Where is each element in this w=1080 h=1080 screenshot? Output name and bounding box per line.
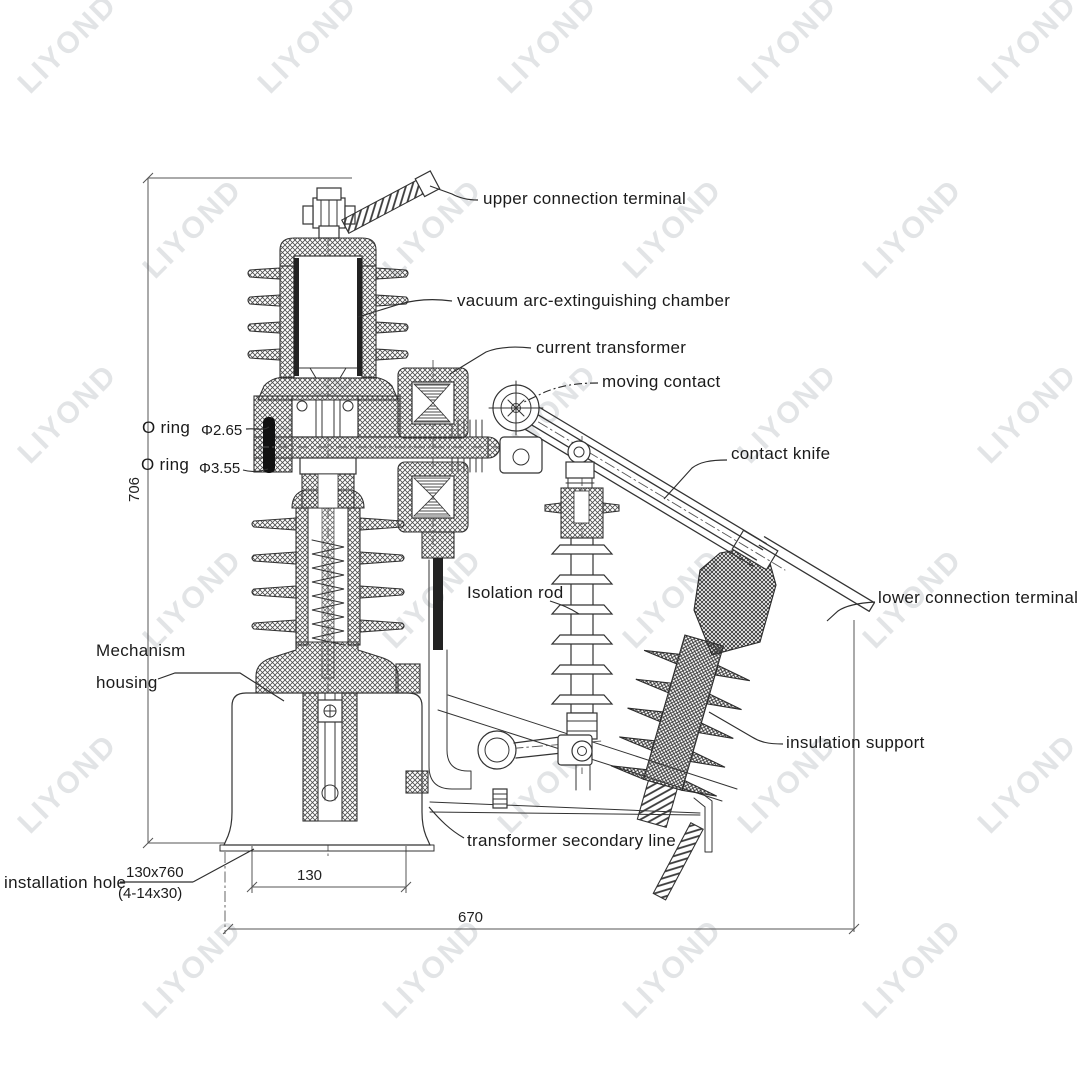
watermark-text: LIYOND <box>972 0 1080 100</box>
watermark-text: LIYOND <box>12 0 124 100</box>
watermark-text: LIYOND <box>137 173 249 285</box>
vacuum-interrupter <box>294 256 362 378</box>
watermark-text: LIYOND <box>857 173 969 285</box>
watermark-text: LIYOND <box>137 543 249 655</box>
leader-contact-knife <box>664 460 727 499</box>
watermark-text: LIYOND <box>12 728 124 840</box>
watermark-text: LIYOND <box>137 913 249 1025</box>
watermark-text: LIYOND <box>12 358 124 470</box>
isolation-rod <box>545 436 619 774</box>
leader-lower-terminal <box>827 602 875 621</box>
breaker-cross-section-diagram: LIYONDLIYONDLIYONDLIYONDLIYONDLIYONDLIYO… <box>0 0 1080 1080</box>
label-lower-connection-terminal: lower connection terminal <box>878 588 1078 607</box>
technical-drawing-page: LIYONDLIYONDLIYONDLIYONDLIYONDLIYONDLIYO… <box>0 0 1080 1080</box>
middle-insulator <box>252 490 404 693</box>
watermark-text: LIYOND <box>732 0 844 100</box>
drive-shaft <box>254 437 488 458</box>
label-upper-connection-terminal: upper connection terminal <box>483 189 686 208</box>
hole-spacing-dimension-line <box>252 846 406 893</box>
watermark-text: LIYOND <box>857 913 969 1025</box>
label-o-ring-top: O ring <box>142 418 190 437</box>
o-ring-seal <box>263 417 275 473</box>
label-moving-contact: moving contact <box>602 372 721 391</box>
watermark-text: LIYOND <box>972 728 1080 840</box>
label-installation-hole-detail: (4-14x30) <box>118 885 182 902</box>
label-mechanism-housing-1: Mechanism <box>96 641 186 660</box>
lower-connection-terminal-bar <box>759 537 874 612</box>
height-dimension-text: 706 <box>126 477 143 502</box>
leader-installation-hole <box>193 849 254 882</box>
label-isolation-rod: Isolation rod <box>467 583 564 602</box>
watermark-text: LIYOND <box>377 913 489 1025</box>
label-o-ring-bottom-value: Φ3.55 <box>199 460 240 477</box>
leader-insulation-support <box>709 712 783 744</box>
label-insulation-support: insulation support <box>786 733 925 752</box>
label-mechanism-housing-2: housing <box>96 673 158 692</box>
label-installation-hole: installation hole <box>4 873 126 892</box>
housing-side-block <box>396 664 420 693</box>
label-transformer-secondary-line: transformer secondary line <box>467 831 676 850</box>
label-vacuum-chamber: vacuum arc-extinguishing chamber <box>457 291 730 310</box>
label-current-transformer: current transformer <box>536 338 686 357</box>
label-contact-knife: contact knife <box>731 444 830 463</box>
knife-centerline <box>505 402 786 570</box>
width-dimension-text: 670 <box>458 909 483 926</box>
hole-spacing-text: 130 <box>297 867 322 884</box>
watermark-text: LIYOND <box>252 0 364 100</box>
label-o-ring-top-value: Φ2.65 <box>201 422 242 439</box>
label-o-ring-bottom: O ring <box>141 455 189 474</box>
watermark-text: LIYOND <box>492 0 604 100</box>
watermark-text: LIYOND <box>617 913 729 1025</box>
label-installation-hole-size: 130x760 <box>126 864 184 881</box>
watermark-text: LIYOND <box>972 358 1080 470</box>
